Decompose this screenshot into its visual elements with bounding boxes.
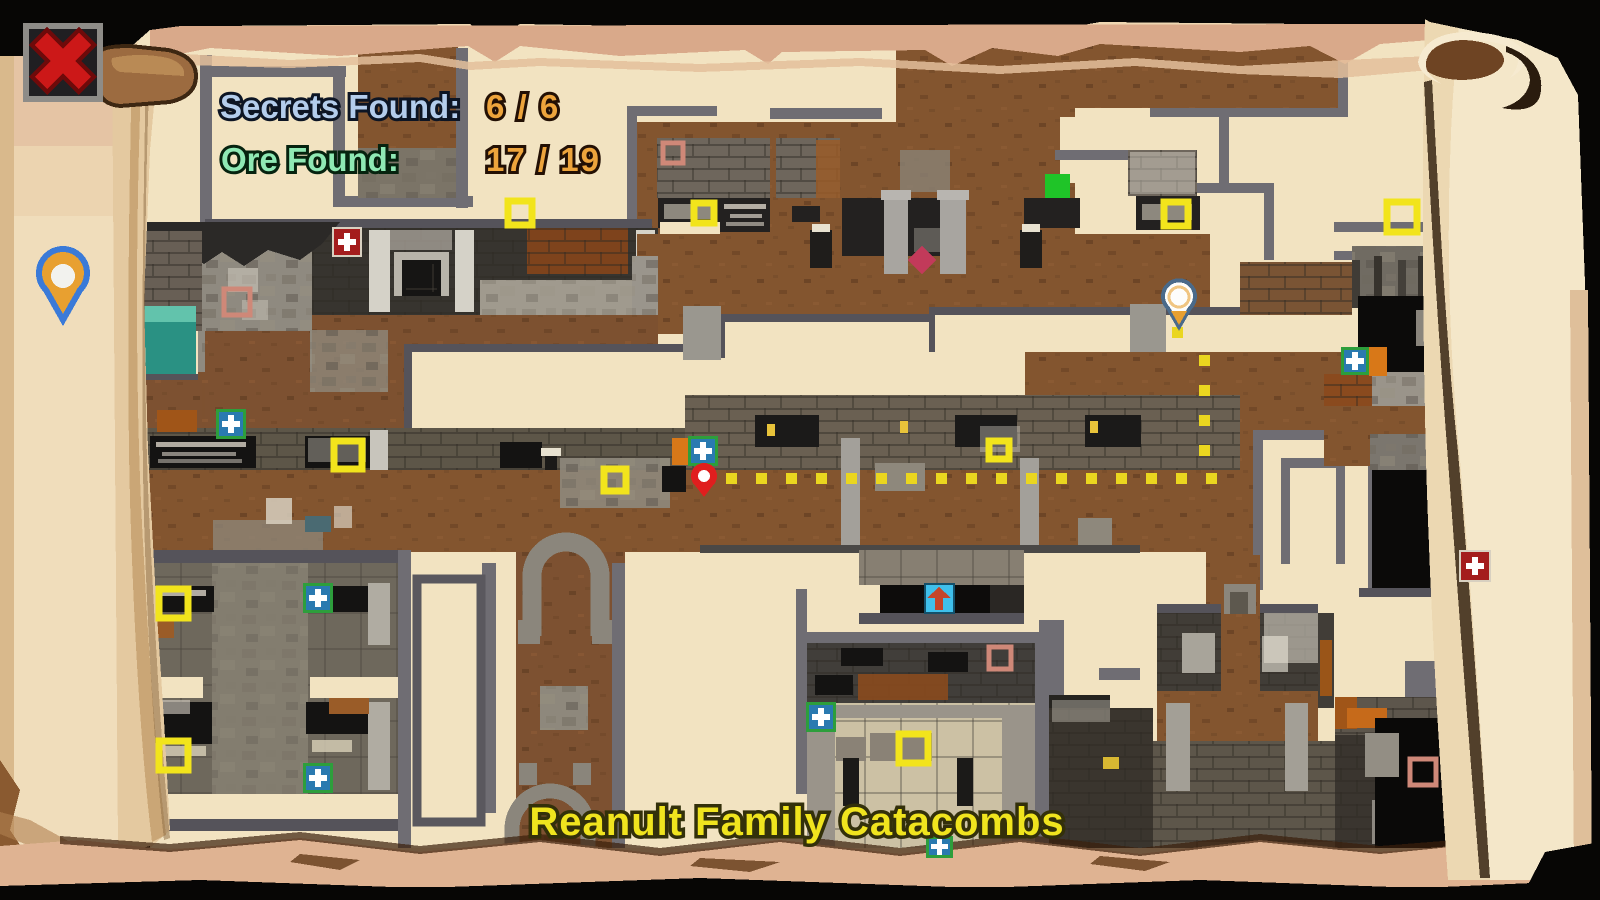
svg-text:Reanult Family Catacombs: Reanult Family Catacombs	[529, 800, 1064, 844]
svg-text:Ore Found:: Ore Found:	[221, 141, 399, 178]
svg-text:6 / 6: 6 / 6	[486, 88, 560, 125]
svg-text:17 / 19: 17 / 19	[486, 141, 601, 178]
svg-text:Secrets Found:: Secrets Found:	[220, 88, 460, 125]
